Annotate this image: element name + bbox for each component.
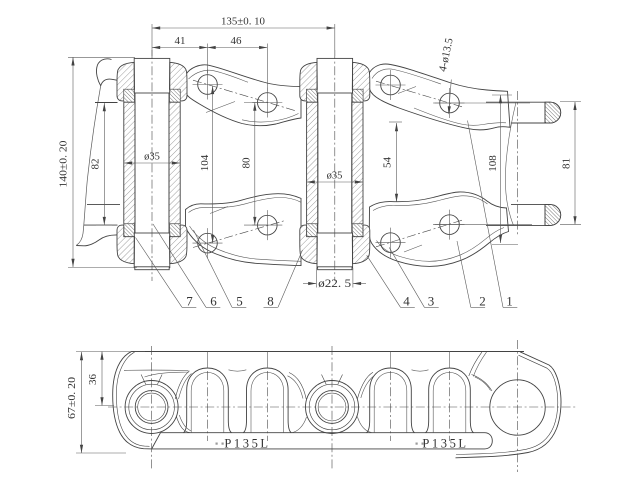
svg-text:ø35: ø35 xyxy=(144,152,160,163)
svg-text:140±0. 20: 140±0. 20 xyxy=(58,140,70,188)
svg-text:81: 81 xyxy=(561,158,573,169)
svg-text:41: 41 xyxy=(175,35,186,47)
svg-text:5: 5 xyxy=(236,294,243,309)
svg-text:8: 8 xyxy=(267,294,274,309)
svg-text:108: 108 xyxy=(487,155,499,172)
svg-text:P135L: P135L xyxy=(224,437,270,451)
svg-text:135±0. 10: 135±0. 10 xyxy=(221,16,265,28)
svg-text:4: 4 xyxy=(403,294,410,309)
svg-text:7: 7 xyxy=(186,294,193,309)
svg-text:80: 80 xyxy=(241,157,253,169)
svg-text:P135L: P135L xyxy=(422,437,468,451)
svg-text:54: 54 xyxy=(382,157,394,169)
svg-text:3: 3 xyxy=(428,294,435,309)
svg-text:1: 1 xyxy=(506,294,513,309)
svg-text:ø35: ø35 xyxy=(327,171,343,182)
svg-text:67±0. 20: 67±0. 20 xyxy=(66,376,78,419)
svg-text:82: 82 xyxy=(89,159,101,170)
svg-text:104: 104 xyxy=(199,154,211,171)
svg-text:46: 46 xyxy=(231,35,243,47)
svg-text:ø22. 5: ø22. 5 xyxy=(318,276,351,290)
svg-text:2: 2 xyxy=(479,294,486,309)
svg-text:6: 6 xyxy=(210,294,217,309)
svg-text:36: 36 xyxy=(87,374,99,386)
